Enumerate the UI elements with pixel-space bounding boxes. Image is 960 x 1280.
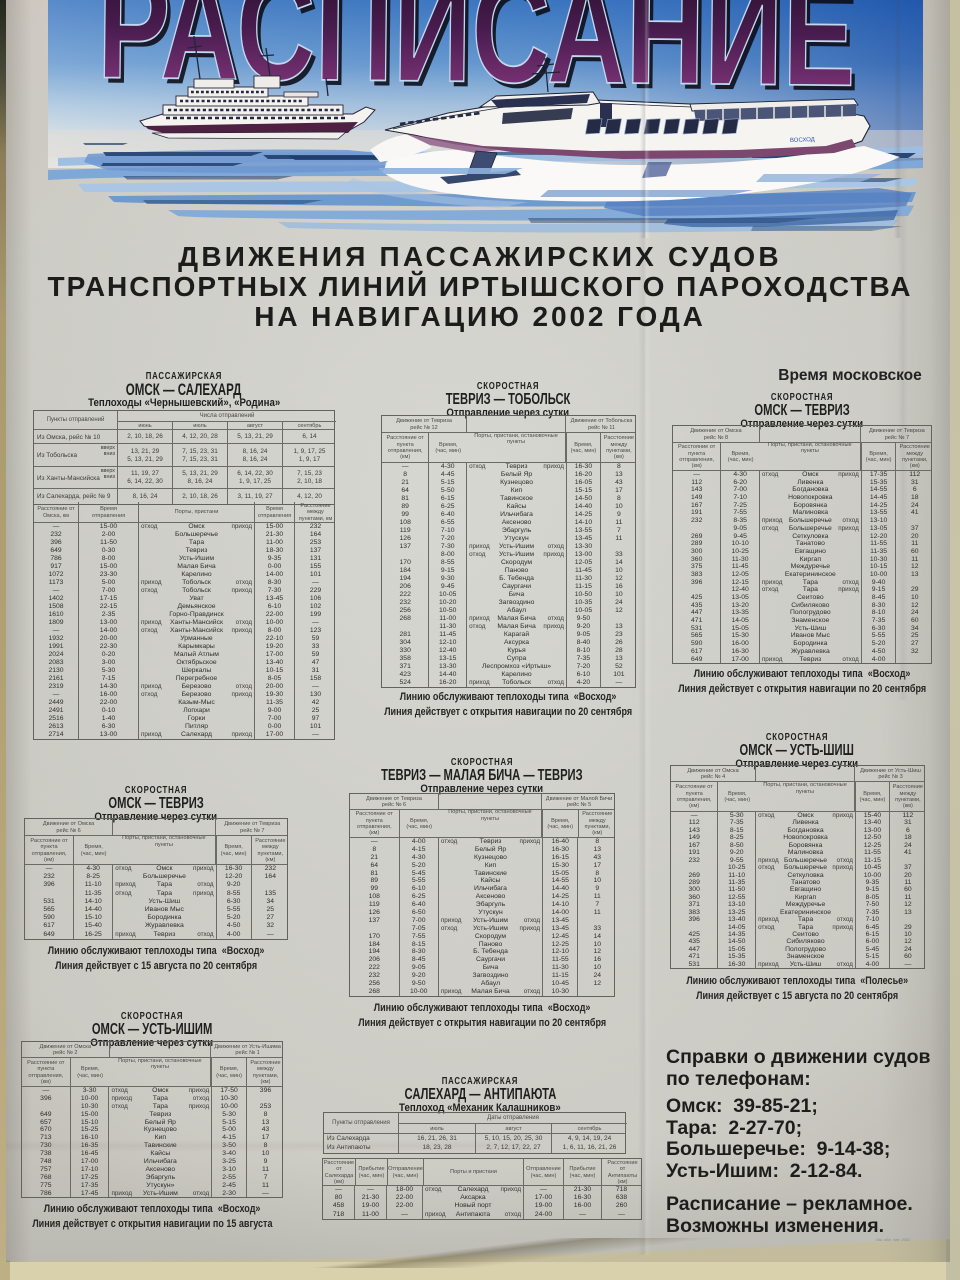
svg-text:ВОСХОД: ВОСХОД	[790, 137, 815, 144]
